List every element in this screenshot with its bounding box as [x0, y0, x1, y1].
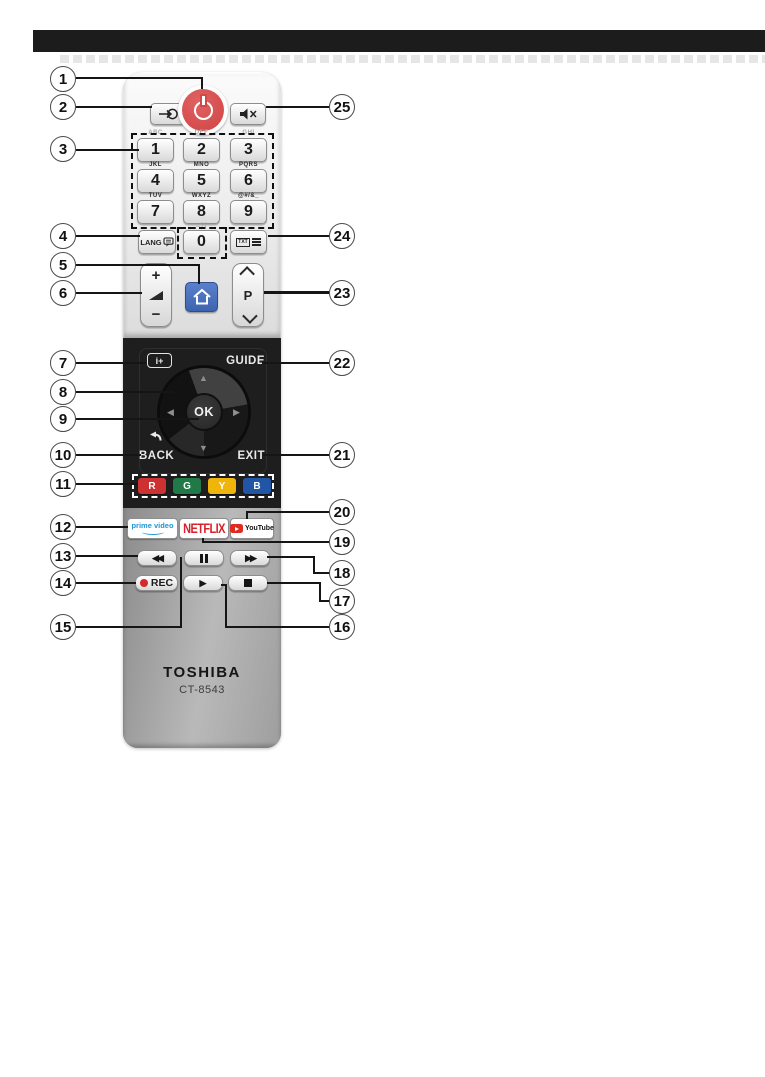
callout-line-8 [76, 391, 175, 393]
scan-artifact-strip [60, 55, 765, 63]
callout-23: 23 [329, 280, 355, 306]
callout-7: 7 [50, 350, 76, 376]
chevron-up-icon [239, 266, 255, 282]
remote-control-illustration: ABC DEF GHI 1 2 3 JKL MNO PQRS 4 5 6 TUV… [123, 72, 281, 748]
callout-21: 21 [329, 442, 355, 468]
power-icon [182, 89, 224, 131]
youtube-button: YouTube [230, 518, 274, 539]
callout-line-6 [76, 292, 142, 294]
callout-9: 9 [50, 406, 76, 432]
callout-25: 25 [329, 94, 355, 120]
language-button: LANG [138, 230, 176, 254]
color-keys-callout-box [132, 474, 274, 498]
brand-logo: TOSHIBA [123, 664, 281, 681]
callout-16: 16 [329, 614, 355, 640]
callout-line-13 [76, 555, 138, 557]
exit-button: EXIT [223, 450, 265, 462]
callout-line-21 [263, 454, 329, 456]
callout-line-7 [76, 362, 146, 364]
youtube-logo: YouTube [230, 524, 274, 533]
record-dot-icon [140, 579, 148, 587]
netflix-button: NETFLIX [179, 518, 229, 539]
power-button [178, 85, 228, 135]
callout-line-9 [76, 418, 199, 420]
volume-up-label: + [152, 267, 161, 284]
prime-video-logo: prime video [131, 522, 173, 529]
info-button: i+ [147, 353, 172, 368]
section-header-bar [33, 30, 765, 52]
callout-2: 2 [50, 94, 76, 120]
callout-line-24 [268, 235, 329, 237]
chevron-down-icon [242, 308, 258, 324]
arrow-up-icon: ▲ [199, 374, 208, 383]
zero-key-callout-box [177, 227, 227, 259]
callout-line-17 [267, 582, 321, 584]
callout-13: 13 [50, 543, 76, 569]
arrow-down-icon: ▼ [199, 444, 208, 453]
callout-5: 5 [50, 252, 76, 278]
callout-17: 17 [329, 588, 355, 614]
callout-20: 20 [329, 499, 355, 525]
callout-line-16b [225, 584, 227, 628]
volume-down-label: − [152, 306, 161, 323]
volume-icon [149, 291, 163, 300]
callout-line-12 [76, 526, 128, 528]
callout-4: 4 [50, 223, 76, 249]
callout-line-19 [202, 541, 329, 543]
pause-icon [200, 554, 209, 563]
remote-bottom-section [123, 508, 281, 748]
callout-3: 3 [50, 136, 76, 162]
callout-11: 11 [50, 471, 76, 497]
callout-14: 14 [50, 570, 76, 596]
callout-line-15b [180, 557, 182, 628]
callout-10: 10 [50, 442, 76, 468]
netflix-logo: NETFLIX [183, 521, 225, 536]
callout-18: 18 [329, 560, 355, 586]
callout-line-1b [201, 77, 203, 89]
stop-icon [244, 579, 252, 587]
callout-line-2 [76, 106, 152, 108]
callout-6: 6 [50, 280, 76, 306]
callout-22: 22 [329, 350, 355, 376]
callout-line-16 [225, 626, 329, 628]
callout-line-5b [198, 264, 200, 284]
callout-8: 8 [50, 379, 76, 405]
subtitle-icon [163, 237, 174, 247]
volume-rocker: + − [140, 263, 172, 327]
rewind-icon: ◀◀ [152, 554, 162, 563]
source-icon [157, 107, 179, 121]
mute-icon [238, 107, 258, 121]
play-button: ▶ [183, 575, 223, 591]
back-button: BACK [139, 450, 174, 462]
digit-keys-callout-box [131, 133, 274, 229]
stop-button [228, 575, 268, 591]
callout-line-11 [76, 483, 137, 485]
program-label: P [244, 288, 253, 303]
pause-button [184, 550, 224, 566]
home-button [185, 282, 218, 312]
arrow-left-icon: ◀ [167, 408, 174, 417]
callout-line-25 [266, 106, 329, 108]
callout-line-5 [76, 264, 200, 266]
callout-24: 24 [329, 223, 355, 249]
callout-line-20 [246, 511, 329, 513]
prime-smile-icon [142, 529, 164, 535]
callout-line-23 [264, 291, 329, 294]
ok-button: OK [185, 393, 223, 431]
guide-button: GUIDE [215, 355, 265, 367]
callout-line-3 [76, 149, 139, 151]
program-rocker: P [232, 263, 264, 327]
fast-forward-button: ▶▶ [230, 550, 270, 566]
callout-line-10 [76, 454, 141, 456]
record-button: REC [135, 575, 178, 591]
callout-19: 19 [329, 529, 355, 555]
manual-page: ABC DEF GHI 1 2 3 JKL MNO PQRS 4 5 6 TUV… [0, 0, 765, 1077]
callout-line-22 [262, 362, 329, 364]
teletext-icon: TXT [236, 238, 260, 247]
back-icon [147, 431, 162, 442]
youtube-play-icon [230, 524, 243, 533]
callout-line-16c [221, 584, 227, 586]
prime-video-button: prime video [127, 518, 178, 539]
play-icon: ▶ [200, 579, 207, 588]
callout-12: 12 [50, 514, 76, 540]
fast-forward-icon: ▶▶ [245, 554, 255, 563]
info-icon: i+ [156, 356, 164, 366]
callout-line-14 [76, 582, 136, 584]
callout-line-18 [267, 556, 315, 558]
mute-button [230, 103, 266, 125]
arrow-right-icon: ▶ [233, 408, 240, 417]
callout-line-15 [76, 626, 182, 628]
model-number: CT-8543 [123, 684, 281, 696]
callout-line-1 [76, 77, 203, 79]
home-icon [191, 288, 213, 306]
callout-line-4 [76, 235, 140, 237]
callout-15: 15 [50, 614, 76, 640]
callout-line-17b [319, 582, 321, 602]
callout-1: 1 [50, 66, 76, 92]
teletext-button: TXT [230, 230, 267, 254]
rewind-button: ◀◀ [137, 550, 177, 566]
